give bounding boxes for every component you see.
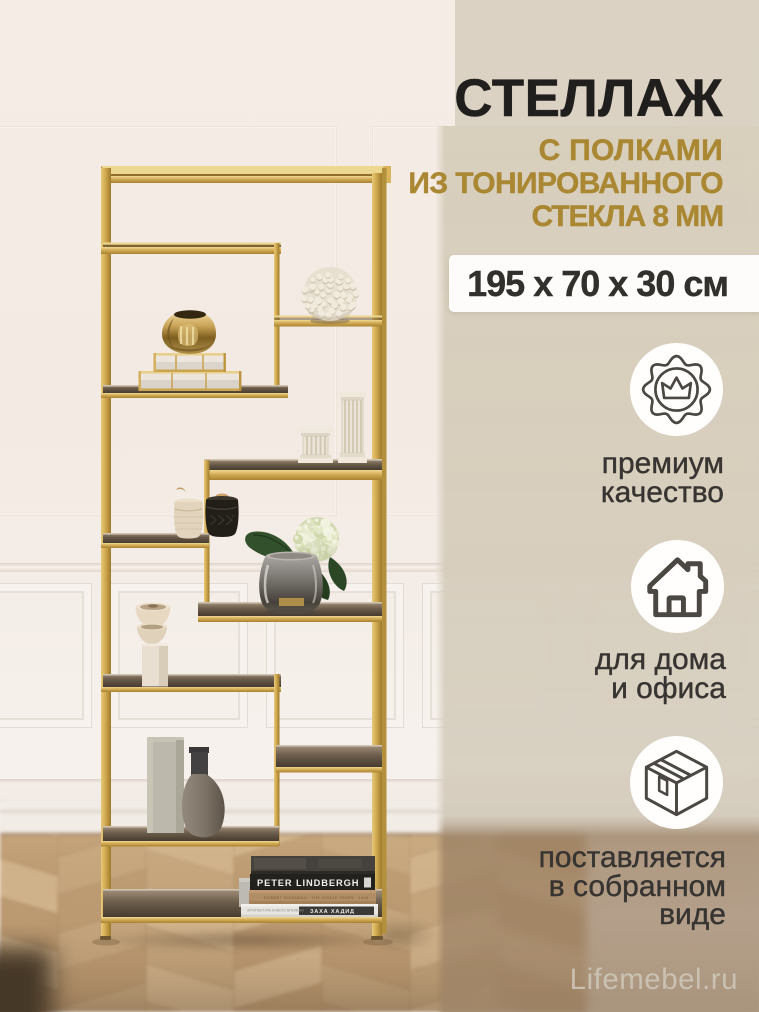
svg-text:ROBERT DOISNEAU · THE VOGUE YE: ROBERT DOISNEAU · THE VOGUE YEARS · 1949 [264, 895, 369, 900]
svg-text:АРХИТЕКТУРА НОВОГО ВРЕМЕНИ: АРХИТЕКТУРА НОВОГО ВРЕМЕНИ [247, 909, 304, 913]
svg-text:ЗАХА ХАДИД: ЗАХА ХАДИД [310, 909, 355, 915]
svg-text:PETER LINDBERGH: PETER LINDBERGH [257, 878, 359, 888]
